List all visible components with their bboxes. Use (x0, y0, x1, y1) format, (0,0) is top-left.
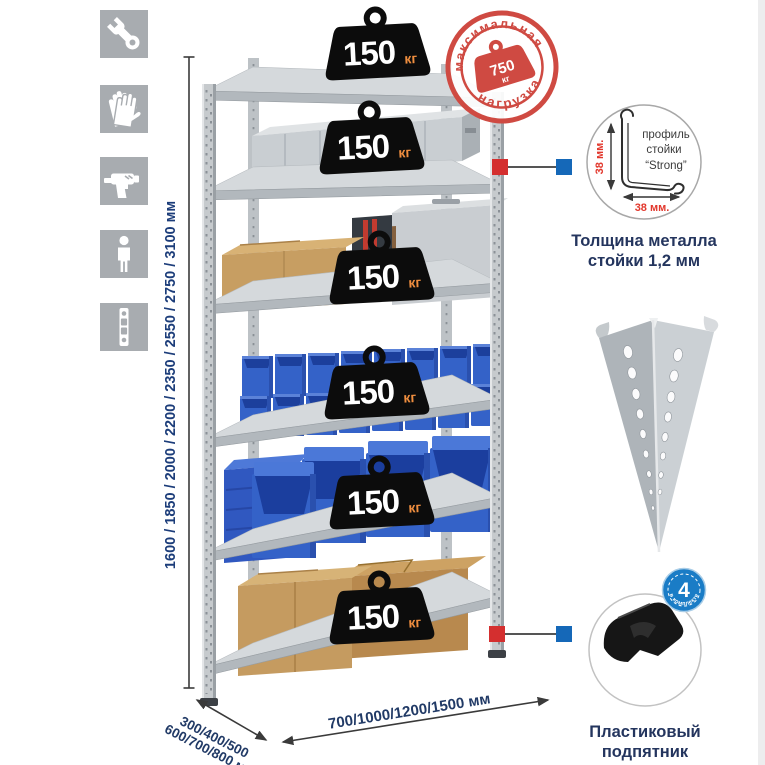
svg-text:38 мм.: 38 мм. (594, 140, 606, 175)
svg-text:150: 150 (346, 482, 400, 522)
profile-caption-line1: Толщина металла (571, 232, 717, 250)
plastic-foot-callout: 4 в комплекте (589, 569, 706, 707)
scene: 1600 / 1850 / 2000 / 2200 / 2350 / 2550 … (0, 0, 765, 765)
red-marker (492, 159, 508, 175)
svg-text:кг: кг (398, 144, 412, 161)
shelf-load-badge-1: 150кг (322, 7, 430, 81)
profile-detail-callout: 38 мм. 38 мм. профиль стойки “Strong” (587, 105, 701, 219)
depth-options-label: 300/400/500 600/700/800 мм (162, 709, 263, 765)
plastic-foot (200, 698, 218, 706)
svg-text:150: 150 (342, 33, 396, 73)
feature-icons-panel (100, 10, 148, 351)
storage-bin-small (275, 354, 306, 396)
svg-text:кг: кг (404, 50, 418, 67)
svg-text:стойки: стойки (646, 144, 681, 156)
svg-text:профиль: профиль (642, 129, 690, 141)
svg-text:150: 150 (346, 257, 400, 297)
svg-text:кг: кг (408, 614, 422, 631)
page-edge-divider (758, 0, 765, 765)
upright-front-right (488, 92, 506, 658)
storage-bin-small (242, 356, 273, 398)
svg-text:“Strong”: “Strong” (645, 160, 687, 172)
shelf-load-badge-2: 150кг (316, 101, 424, 175)
profile-callout-connector (492, 159, 572, 175)
svg-text:150: 150 (341, 372, 395, 412)
height-dimension (184, 57, 195, 688)
height-options-label: 1600 / 1850 / 2000 / 2200 / 2350 / 2550 … (163, 201, 179, 569)
svg-text:кг: кг (408, 499, 422, 516)
svg-text:кг: кг (408, 274, 422, 291)
svg-text:150: 150 (346, 597, 400, 637)
width-dimension: 700/1000/1200/1500 мм (283, 690, 548, 742)
upright-profile-photo (596, 316, 719, 552)
included-count-badge: 4 в комплекте (663, 569, 706, 612)
work-gloves-icon (100, 85, 148, 133)
red-marker (489, 626, 505, 642)
drill-icon (100, 157, 148, 205)
perforated-upright-icon (100, 303, 148, 351)
foot-caption-line1: Пластиковый (589, 723, 700, 741)
blue-marker (556, 626, 572, 642)
blue-marker (556, 159, 572, 175)
upright-front-left (200, 84, 218, 706)
plastic-foot (488, 650, 506, 658)
person-height-icon (100, 230, 148, 278)
svg-text:кг: кг (403, 389, 417, 406)
depth-dimension: 300/400/500 600/700/800 мм (162, 700, 266, 765)
svg-text:4: 4 (678, 579, 690, 602)
foot-caption-line2: подпятник (602, 743, 689, 761)
svg-text:150: 150 (336, 127, 390, 167)
svg-text:38 мм.: 38 мм. (635, 202, 670, 214)
width-options-label: 700/1000/1200/1500 мм (327, 690, 492, 732)
profile-caption-line2: стойки 1,2 мм (588, 252, 700, 270)
wrench-icon (100, 10, 148, 58)
shelving-product-infographic: 1600 / 1850 / 2000 / 2200 / 2350 / 2550 … (0, 0, 765, 765)
foot-callout-connector (489, 626, 572, 642)
